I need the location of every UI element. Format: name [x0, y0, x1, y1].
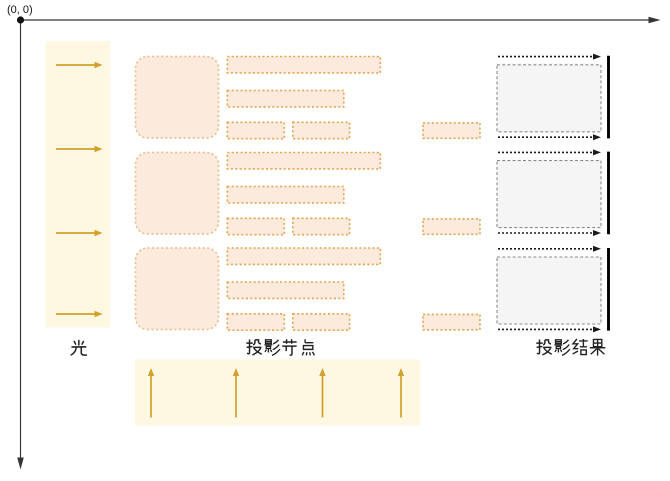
- svg-text:(0, 0): (0, 0): [7, 4, 33, 16]
